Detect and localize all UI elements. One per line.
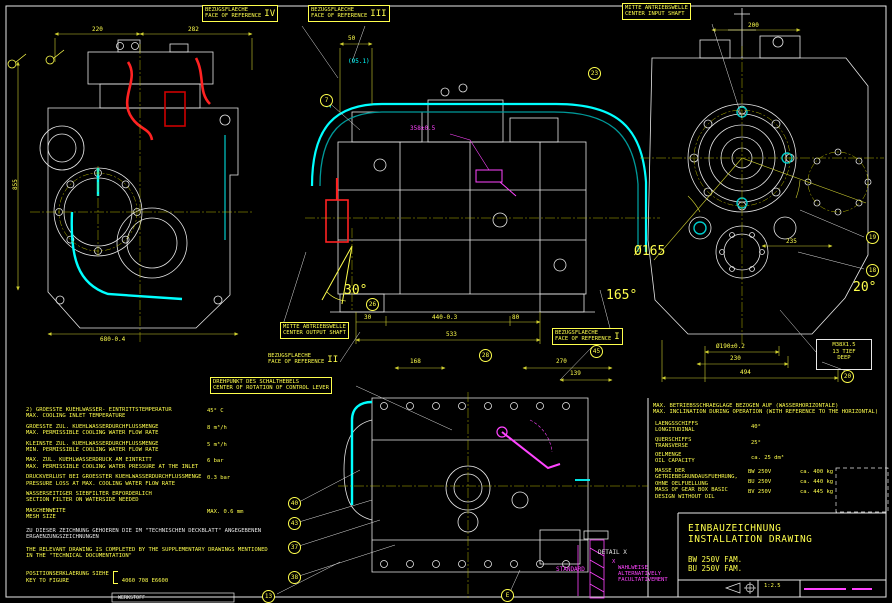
balloon-45: 45 (590, 345, 603, 358)
supplement-note-en: THE RELEVANT DRAWING IS COMPLETED BY THE… (26, 547, 276, 560)
note-1-value: 8 m³/h (207, 425, 227, 431)
drawing-scale: 1:2.5 (764, 583, 781, 589)
mass-label-en: MASS OF GEAR BOX BASIC DESIGN WITHOUT OI… (655, 487, 743, 500)
notes-right-block: MAX. BETRIEBSSCHRAEGLAGE BEZOGEN AUF (WA… (653, 403, 889, 416)
dim-855: 855 (13, 179, 19, 190)
note-1-en: MAX. PERMISSIBLE COOLING WATER FLOW RATE (26, 430, 204, 436)
input-shaft-label: MITTE ANTRIEBSWELLE CENTER INPUT SHAFT (622, 3, 691, 20)
cad-drawing-sheet: { "sheet": { "title_de": "EINBAUZEICHNUN… (0, 0, 892, 603)
note-0-en: MAX. COOLING INLET TEMPERATURE (26, 413, 204, 419)
note-4-value: 0.3 bar (207, 475, 230, 481)
dim-139: 139 (570, 371, 581, 377)
dim-270: 270 (556, 359, 567, 365)
mass-variant-1: BU 250V (748, 479, 771, 485)
mass-value-2: ca. 445 kg (800, 489, 833, 495)
dim-494: 494 (740, 370, 751, 376)
middle-view-red-part (326, 178, 348, 242)
output-shaft-en: CENTER OUTPUT SHAFT (283, 330, 346, 336)
ref-i-en: FACE OF REFERENCE (555, 336, 611, 342)
note-2-en: MIN. PERMISSIBLE COOLING WATER FLOW RATE (26, 447, 204, 453)
dim-dia165: Ø165 (634, 245, 665, 258)
dim-680: 680-0.4 (100, 337, 125, 343)
note-row: 2) GROESSTE KUEHLWASSER- EINTRITTSTEMPER… (26, 407, 360, 420)
angle-30: 30° (344, 284, 367, 297)
transverse-en: TRANSVERSE (655, 443, 691, 449)
balloon-26: 26 (366, 298, 379, 311)
leader-lines (277, 24, 864, 594)
balloon-e: E (501, 589, 514, 602)
dim-95-1: (95.1) (348, 59, 370, 65)
detail-x-title: DETAIL X (598, 549, 627, 556)
drawing-title-en: INSTALLATION DRAWING (688, 535, 812, 546)
bottom-view-control-lever (497, 420, 560, 468)
dim-282: 282 (188, 27, 199, 33)
detail-standard-label: STANDARD (556, 566, 585, 573)
oil-capacity-row: OELMENGE OIL CAPACITY (655, 452, 695, 465)
note-row: GROESSTE ZUL. KUEHLWASSERDURCHFLUSSMENGE… (26, 424, 360, 437)
longitudinal-value: 40° (751, 424, 761, 430)
drawing-title: EINBAUZEICHNUNG INSTALLATION DRAWING (688, 524, 812, 545)
oil-capacity-en: OIL CAPACITY (655, 458, 695, 464)
note-row: MASCHENWEITEMESH SIZEMAX. 0.6 mm (26, 508, 360, 521)
detail-alt-fr: FACULTATIVEMENT (618, 577, 668, 584)
ref-face-ii-label: BEZUGSFLAECHE FACE OF REFERENCEII (266, 352, 340, 367)
incline-row-longitudinal: LAENGSSCHIFFS LONGITUDINAL (655, 421, 698, 434)
detail-alt-x: X (612, 559, 615, 566)
lever-pivot-label: DREHPUNKT DES SCHALTHEBELS CENTER OF ROT… (210, 377, 332, 394)
material-label: WERKSTOFF (118, 595, 145, 601)
mass-variant-2: BV 250V (748, 489, 771, 495)
angle-20: 20° (853, 281, 876, 294)
balloon-19: 19 (866, 231, 879, 244)
note-row: MAX. ZUL. KUEHLWASSERDRUCK AM EINTRITTMA… (26, 457, 360, 470)
note-3-value: 6 bar (207, 458, 224, 464)
dim-440: 440-0.3 (432, 315, 457, 321)
longitudinal-en: LONGITUDINAL (655, 427, 698, 433)
left-view-lines (40, 40, 238, 328)
ref-iv-en: FACE OF REFERENCE (205, 13, 261, 19)
balloon-28: 28 (479, 349, 492, 362)
bottom-view-lines (344, 398, 608, 572)
right-view-lines (648, 8, 871, 334)
ref-iv-numeral: IV (264, 9, 275, 19)
dim-30: 30 (364, 315, 371, 321)
dim-533: 533 (446, 332, 457, 338)
mass-value-1: ca. 440 kg (800, 479, 833, 485)
ref-face-i-label: BEZUGSFLAECHE FACE OF REFERENCEI (552, 328, 623, 345)
middle-view-cyan-piping (312, 104, 646, 252)
note-row: WASSERSEITIGER SIEBFILTER ERFORDERLICHSE… (26, 491, 360, 504)
note-row: DRUCKVERLUST BEI GROESSTER KUEHLWASSERDU… (26, 474, 360, 487)
ref-face-iv-label: BEZUGSFLAECHE FACE OF REFERENCEIV (202, 5, 278, 22)
dim-168: 168 (410, 359, 421, 365)
note-6-en: MESH SIZE (26, 514, 204, 520)
note-6-value: MAX. 0.6 mm (207, 509, 243, 515)
dim-235: 235 (786, 239, 797, 245)
middle-view-lines (330, 84, 595, 312)
key-de: POSITIONSERKLAERUNG SIEHE (26, 571, 109, 577)
bottom-view-cyan-piping (352, 402, 590, 505)
angle-165: 165° (606, 289, 637, 302)
ref-i-numeral: I (614, 332, 619, 342)
output-shaft-label: MITTE ABTRIEBSWELLE CENTER OUTPUT SHAFT (280, 322, 349, 339)
thread-note-box: M38X1.5 13 TIEF DEEP (816, 339, 872, 370)
note-3-en: MAX. PERMISSIBLE COOLING WATER PRESSURE … (26, 464, 204, 470)
model-family-2: BU 250V FAM. (688, 564, 742, 573)
ref-iii-en: FACE OF REFERENCE (311, 13, 367, 19)
model-family-list: BW 250V FAM. BU 250V FAM. (688, 555, 742, 573)
note-row: KLEINSTE ZUL. KUEHLWASSERDURCHFLUSSMENGE… (26, 441, 360, 454)
transverse-value: 25° (751, 440, 761, 446)
key-value: 4060 708 E6600 (122, 578, 168, 584)
note-0-value: 45° C (207, 408, 224, 414)
ref-iii-numeral: III (370, 9, 386, 19)
balloon-7: 7 (320, 94, 333, 107)
note-5-en: SECTION FILTER ON WATERSIDE NEEDED (26, 497, 204, 503)
dim-80: 80 (512, 315, 519, 321)
ref-face-iii-label: BEZUGSFLAECHE FACE OF REFERENCEIII (308, 5, 390, 22)
dim-50: 50 (348, 36, 355, 42)
mass-value-0: ca. 400 kg (800, 469, 833, 475)
dim-230: 230 (730, 356, 741, 362)
dim-220: 220 (92, 27, 103, 33)
drawing-title-de: EINBAUZEICHNUNG (688, 524, 812, 535)
mass-label-de: MASSE DER GETRIEBEGRUNDAUSFUEHRUNG, OHNE… (655, 468, 743, 487)
left-view-red-piping (127, 58, 210, 140)
model-family-1: BW 250V FAM. (688, 555, 742, 564)
projection-symbol (726, 582, 756, 594)
incline-row-transverse: QUERSCHIFFS TRANSVERSE (655, 437, 691, 450)
note-2-value: 5 m³/h (207, 442, 227, 448)
mass-label: MASSE DER GETRIEBEGRUNDAUSFUEHRUNG, OHNE… (655, 468, 743, 500)
middle-view-magenta-parts (450, 134, 516, 196)
balloon-13: 13 (262, 590, 275, 603)
ref-ii-en: FACE OF REFERENCE (268, 359, 324, 365)
dim-dia190: Ø190±0.2 (716, 344, 745, 350)
left-view-cyan-piping (72, 135, 225, 299)
ref-ii-numeral: II (327, 355, 338, 365)
balloon-20: 20 (841, 370, 854, 383)
mass-variant-0: BW 250V (748, 469, 771, 475)
notes-left-block: 2) GROESSTE KUEHLWASSER- EINTRITTSTEMPER… (26, 407, 360, 586)
incline-header-en: MAX. INCLINATION DURING OPERATION (WITH … (653, 409, 889, 415)
dim-358: 358±0.5 (410, 126, 435, 132)
note-4-en: PRESSURE LOSS AT MAX. COOLING WATER FLOW… (26, 481, 204, 487)
surface-marks (8, 50, 64, 68)
key-en: KEY TO FIGURE (26, 578, 109, 584)
pivot-en: CENTER OF ROTATION OF CONTROL LEVER (213, 385, 329, 391)
supplement-note-de: ZU DIESER ZEICHNUNG GEHOEREN DIE IM "TEC… (26, 528, 266, 541)
balloon-23: 23 (588, 67, 601, 80)
key-to-figure-row: POSITIONSERKLAERUNG SIEHEKEY TO FIGURE40… (26, 567, 360, 586)
input-shaft-en: CENTER INPUT SHAFT (625, 11, 688, 17)
dim-200: 200 (748, 23, 759, 29)
balloon-18: 18 (866, 264, 879, 277)
oil-capacity-value: ca. 25 dm³ (751, 455, 784, 461)
thread-depth-en: DEEP (817, 355, 871, 362)
key-brace (113, 571, 118, 584)
note-4-de: DRUCKVERLUST BEI GROESSTER KUEHLWASSERDU… (26, 474, 204, 480)
